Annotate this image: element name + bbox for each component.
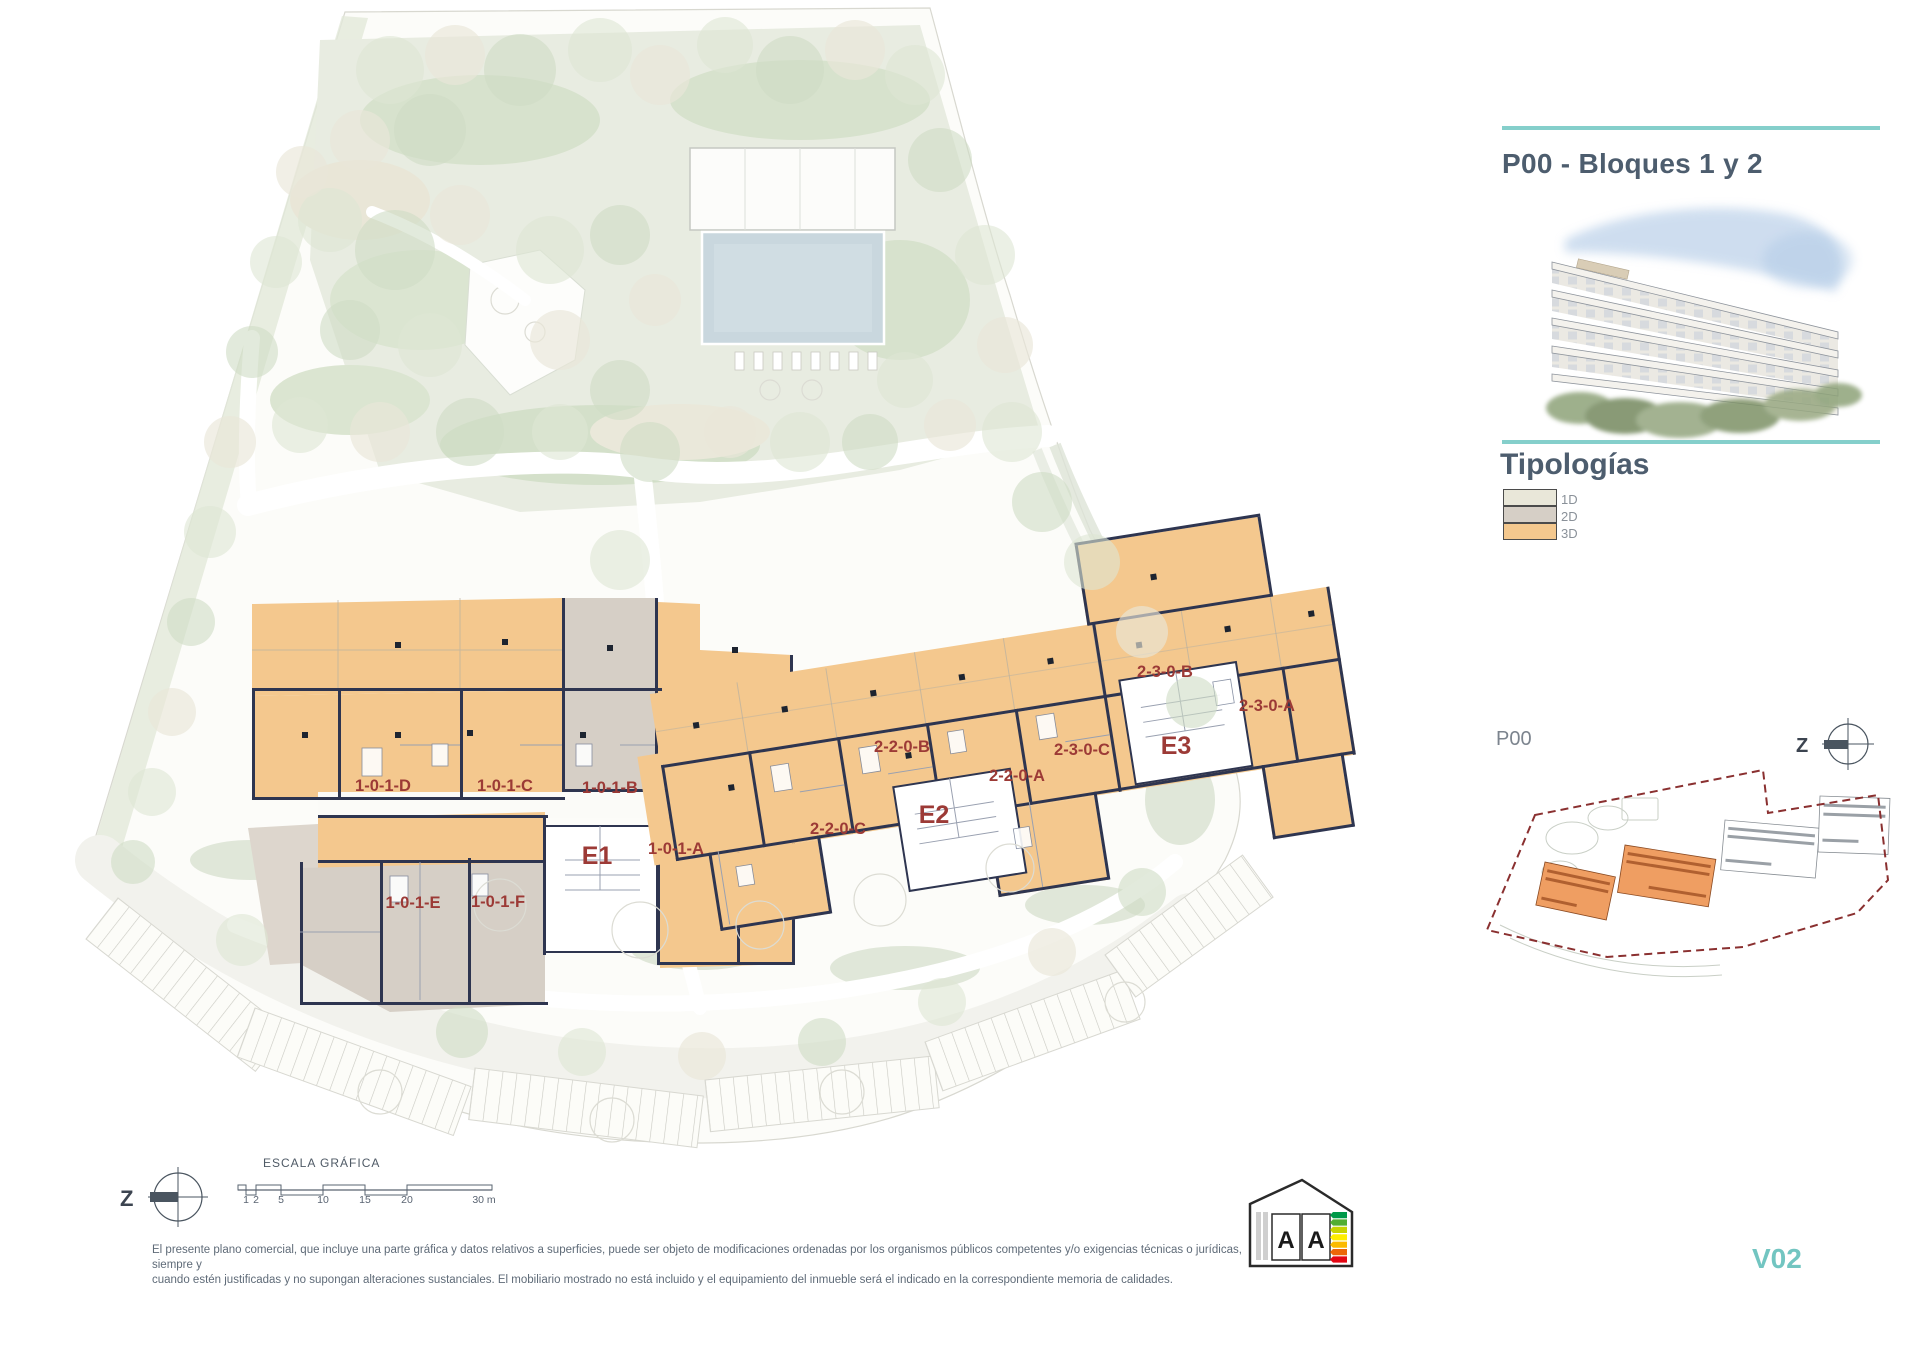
tree <box>558 1028 606 1076</box>
legend-label: 1D <box>1557 491 1578 508</box>
disclaimer-line-1: El presente plano comercial, que incluye… <box>152 1243 1242 1273</box>
tree <box>184 506 236 558</box>
tree <box>356 36 424 104</box>
unit-label-2-3-0-A: 2-3-0-A <box>1239 697 1295 715</box>
tree <box>355 210 435 290</box>
tree <box>204 416 256 468</box>
energy-letter-a1: A <box>1277 1227 1294 1254</box>
tree <box>436 1006 488 1058</box>
scale-title: ESCALA GRÁFICA <box>263 1155 380 1170</box>
disclaimer: El presente plano comercial, que incluye… <box>152 1243 1242 1288</box>
tree <box>877 352 933 408</box>
tree <box>842 414 898 470</box>
plan-sheet: { "panel": { "title": "P00 - Bloques 1 y… <box>0 0 1920 1357</box>
tree <box>1064 534 1120 590</box>
scale-tick-1: 1 <box>243 1194 249 1206</box>
tree <box>955 225 1015 285</box>
panel-rule-top <box>1502 126 1880 130</box>
tree <box>516 216 584 284</box>
energy-bar-3 <box>1330 1234 1347 1240</box>
minimap-building-1 <box>1536 862 1616 920</box>
tree <box>704 406 756 458</box>
unit-label-1-0-1-D: 1-0-1-D <box>355 777 411 795</box>
tree <box>1116 606 1168 658</box>
unit-label-1-0-1-B: 1-0-1-B <box>582 779 638 797</box>
north-letter: Z <box>120 1186 133 1211</box>
tree <box>770 412 830 472</box>
core-label-E3: E3 <box>1161 732 1192 760</box>
tree <box>484 34 556 106</box>
unit-label-1-0-1-C: 1-0-1-C <box>477 777 533 795</box>
tree <box>111 840 155 884</box>
tree <box>568 18 632 82</box>
tree <box>398 313 462 377</box>
site-plan-svg: 1-0-1-D1-0-1-C1-0-1-B1-0-1-A1-0-1-E1-0-1… <box>0 0 1920 1357</box>
energy-bar-0 <box>1330 1212 1347 1218</box>
scale-tick-2: 2 <box>253 1194 259 1206</box>
scale-tick-10: 10 <box>317 1194 329 1206</box>
tree <box>330 110 390 170</box>
tree <box>908 128 972 192</box>
tree <box>590 205 650 265</box>
energy-certificate-icon: A A <box>1250 1180 1352 1266</box>
scale-bar: ESCALA GRÁFICA 12510152030 m <box>238 1155 496 1206</box>
unit-label-1-0-1-A: 1-0-1-A <box>648 840 704 858</box>
energy-bar-2 <box>1330 1227 1347 1233</box>
tree <box>620 422 680 482</box>
legend-label: 2D <box>1557 508 1578 525</box>
tree <box>250 236 302 288</box>
unit-label-2-3-0-C: 2-3-0-C <box>1054 741 1110 759</box>
unit-label-1-0-1-F: 1-0-1-F <box>471 893 525 911</box>
tree <box>885 45 945 105</box>
typologies-title: Tipologías <box>1500 448 1800 482</box>
tree <box>697 17 753 73</box>
tree <box>350 402 410 462</box>
tree <box>1028 928 1076 976</box>
legend-row-3d: 3D <box>1503 525 1578 542</box>
plan-compass: Z <box>120 1167 208 1227</box>
minimap: Z <box>1487 718 1890 977</box>
panel-rule-bottom <box>1502 440 1880 444</box>
tree <box>532 404 588 460</box>
building-rendering <box>1546 208 1862 438</box>
typologies-legend: 1D2D3D <box>1503 491 1578 542</box>
tree <box>590 530 650 590</box>
tree <box>924 399 976 451</box>
scale-tick-20: 20 <box>401 1194 413 1206</box>
tree <box>216 914 268 966</box>
minimap-building-2 <box>1617 845 1715 907</box>
scale-tick-5: 5 <box>278 1194 284 1206</box>
energy-bar-6 <box>1330 1256 1347 1262</box>
unit-label-1-0-1-E: 1-0-1-E <box>385 894 440 912</box>
tree <box>394 94 466 166</box>
tree <box>430 185 490 245</box>
minimap-north-letter: Z <box>1796 735 1808 757</box>
tree <box>226 326 278 378</box>
minimap-building-3 <box>1721 820 1820 878</box>
site: 1-0-1-D1-0-1-C1-0-1-B1-0-1-A1-0-1-E1-0-1… <box>86 8 1369 1148</box>
disclaimer-line-2: cuando estén justificadas y no supongan … <box>152 1273 1242 1288</box>
tree <box>148 688 196 736</box>
scale-tick-30 m: 30 m <box>472 1194 496 1206</box>
tree <box>756 36 824 104</box>
tree <box>128 768 176 816</box>
tree <box>1166 676 1218 728</box>
unit-label-2-2-0-C: 2-2-0-C <box>810 820 866 838</box>
core-label-E2: E2 <box>919 801 950 829</box>
minimap-label: P00 <box>1496 728 1532 751</box>
tree <box>1012 472 1072 532</box>
tree <box>1118 868 1166 916</box>
scale-tick-15: 15 <box>359 1194 371 1206</box>
unit-label-2-3-0-B: 2-3-0-B <box>1137 663 1193 681</box>
tree <box>630 45 690 105</box>
tree <box>530 310 590 370</box>
unit-label-2-2-0-B: 2-2-0-B <box>874 738 930 756</box>
unit-label-2-2-0-A: 2-2-0-A <box>989 767 1045 785</box>
version-label: V02 <box>1752 1243 1802 1275</box>
legend-label: 3D <box>1557 525 1578 542</box>
tree <box>918 978 966 1026</box>
tree <box>798 1018 846 1066</box>
tree <box>167 598 215 646</box>
tree <box>425 25 485 85</box>
tree <box>825 20 885 80</box>
legend-swatch-1d <box>1503 489 1557 506</box>
tree <box>320 300 380 360</box>
tree <box>298 188 362 252</box>
tree <box>436 398 504 466</box>
tree <box>629 274 681 326</box>
tree <box>982 402 1042 462</box>
page-title: P00 - Bloques 1 y 2 <box>1502 148 1892 180</box>
tree <box>678 1032 726 1080</box>
energy-letter-a2: A <box>1307 1227 1324 1254</box>
energy-bar-5 <box>1330 1249 1347 1255</box>
energy-bar-1 <box>1330 1219 1347 1225</box>
tree <box>590 360 650 420</box>
legend-swatch-2d <box>1503 506 1557 523</box>
tree <box>276 146 328 198</box>
tree <box>977 317 1033 373</box>
tree <box>272 397 328 453</box>
energy-bar-4 <box>1330 1242 1347 1248</box>
core-label-E1: E1 <box>582 842 613 870</box>
minimap-compass: Z <box>1796 718 1874 770</box>
legend-swatch-3d <box>1503 523 1557 540</box>
